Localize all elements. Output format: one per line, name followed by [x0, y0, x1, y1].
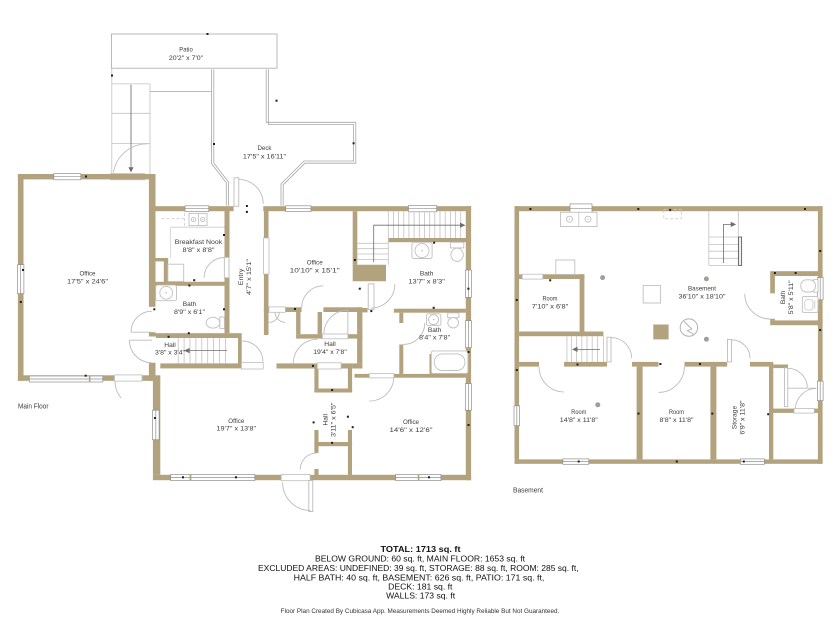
svg-text:TOTAL: 1713 sq. ft: TOTAL: 1713 sq. ft	[381, 545, 461, 554]
svg-text:Bath: Bath	[428, 327, 442, 334]
svg-text:7'10" x 6'8": 7'10" x 6'8"	[532, 304, 569, 311]
svg-text:3'8" x 3'4": 3'8" x 3'4"	[155, 350, 186, 357]
svg-text:Bath: Bath	[780, 290, 787, 304]
svg-text:Office: Office	[403, 419, 419, 426]
svg-text:8'8" x 11'8": 8'8" x 11'8"	[660, 417, 695, 424]
svg-text:Patio: Patio	[179, 47, 193, 54]
svg-text:HALF BATH: 40 sq. ft, BASEMENT: HALF BATH: 40 sq. ft, BASEMENT: 626 sq. …	[294, 574, 545, 583]
svg-text:Breakfast Nook: Breakfast Nook	[175, 239, 223, 246]
svg-text:3'11" x 6'5": 3'11" x 6'5"	[331, 402, 338, 437]
svg-text:Basement: Basement	[688, 286, 716, 293]
svg-text:13'7" x 8'3": 13'7" x 8'3"	[408, 278, 445, 285]
svg-text:14'8" x 11'8": 14'8" x 11'8"	[560, 417, 599, 424]
svg-text:DECK: 181 sq. ft: DECK: 181 sq. ft	[388, 583, 453, 592]
svg-text:19'4" x 7'8": 19'4" x 7'8"	[313, 349, 347, 356]
svg-text:Basement: Basement	[513, 488, 543, 495]
svg-text:6'9" x 11'8": 6'9" x 11'8"	[740, 400, 747, 435]
svg-text:Hall: Hall	[324, 341, 336, 348]
svg-text:Storage: Storage	[732, 406, 739, 430]
svg-text:10'10" x 15'1": 10'10" x 15'1"	[290, 267, 341, 274]
svg-text:20'2" x 7'0": 20'2" x 7'0"	[169, 55, 204, 62]
svg-text:Office: Office	[307, 259, 323, 266]
svg-text:Main Floor: Main Floor	[18, 404, 49, 411]
svg-text:Entry: Entry	[238, 268, 245, 285]
svg-text:Hall: Hall	[164, 342, 176, 349]
svg-text:Deck: Deck	[258, 145, 273, 152]
svg-text:Hall: Hall	[323, 414, 330, 426]
svg-text:Room: Room	[669, 409, 684, 416]
svg-text:Bath: Bath	[420, 270, 434, 277]
svg-text:Office: Office	[228, 418, 244, 425]
svg-text:14'6" x 12'6": 14'6" x 12'6"	[390, 427, 434, 434]
svg-text:WALLS: 173 sq. ft: WALLS: 173 sq. ft	[386, 592, 456, 601]
svg-text:36'10" x 18'10": 36'10" x 18'10"	[679, 294, 727, 301]
svg-text:8'9" x 6'1": 8'9" x 6'1"	[174, 309, 206, 316]
svg-text:19'7" x 13'8": 19'7" x 13'8"	[217, 426, 257, 433]
svg-text:Office: Office	[80, 270, 96, 277]
svg-text:17'5" x 16'11": 17'5" x 16'11"	[243, 154, 287, 161]
svg-text:Room: Room	[571, 409, 586, 416]
svg-text:Floor Plan Created By Cubicasa: Floor Plan Created By Cubicasa App. Meas…	[281, 608, 560, 615]
svg-text:5'8" x 5'11": 5'8" x 5'11"	[788, 280, 795, 315]
svg-text:BELOW GROUND: 60 sq. ft, MAIN: BELOW GROUND: 60 sq. ft, MAIN FLOOR: 165…	[315, 555, 526, 564]
svg-text:8'4" x 7'8": 8'4" x 7'8"	[419, 335, 451, 342]
svg-text:Bath: Bath	[183, 301, 197, 308]
svg-text:4'7" x 15'1": 4'7" x 15'1"	[246, 258, 253, 295]
svg-text:8'8" x 8'8": 8'8" x 8'8"	[183, 247, 216, 254]
svg-text:EXCLUDED AREAS: UNDEFINED: 39: EXCLUDED AREAS: UNDEFINED: 39 sq. ft, ST…	[258, 564, 579, 573]
svg-text:Room: Room	[543, 296, 558, 303]
svg-text:17'5" x 24'6": 17'5" x 24'6"	[67, 278, 109, 285]
